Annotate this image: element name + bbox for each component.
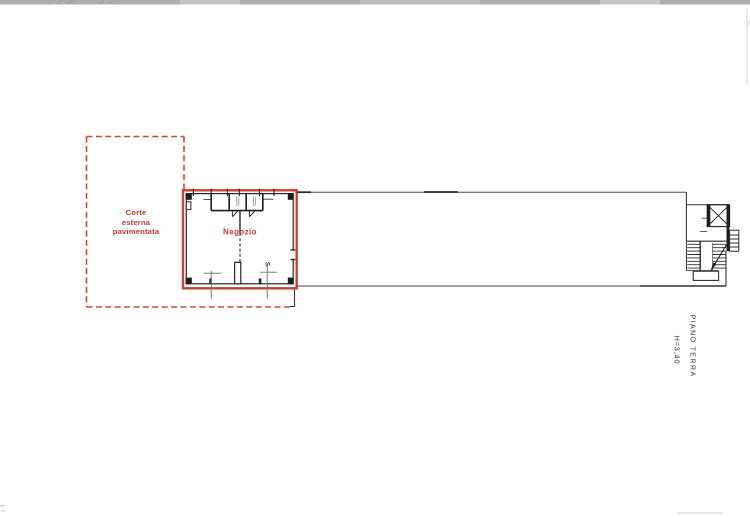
staircase (686, 241, 726, 280)
scan-bottom-left-mark (0, 505, 5, 507)
side-note-floor-name: PIANO TERRA (689, 315, 698, 378)
scan-bottom-left-mark (1, 510, 5, 512)
dimension-line-left (204, 271, 222, 299)
stair-landing (693, 271, 718, 280)
corner-pilaster (288, 278, 294, 285)
side-note-floor-height: H=3,40 (673, 336, 682, 365)
corner-pilaster (288, 193, 294, 200)
courtyard-label: Corte esterna pavimentata (113, 208, 160, 237)
left-wall-niche (186, 202, 191, 210)
courtyard-corner-wall-segment (290, 288, 295, 307)
corner-pilaster (186, 278, 192, 285)
wc-block (211, 194, 263, 284)
shop-label: Negozio (223, 228, 257, 237)
stair-direction-arrowhead (711, 263, 717, 271)
scan-band-streak (180, 0, 240, 5)
courtyard-label-line3: pavimentata (113, 227, 160, 237)
dimension-line-right (260, 266, 277, 299)
scan-band-streak (360, 0, 480, 5)
partition-closet (235, 262, 241, 283)
floor-plan-drawing (0, 0, 750, 517)
mini-stair-outline (730, 230, 739, 251)
courtyard-label-line2: esterna (113, 218, 160, 228)
corner-pilaster (186, 193, 192, 200)
long-building-outline (297, 192, 726, 286)
shaft-wall-extension (727, 227, 730, 252)
shaft-thick-wall (727, 205, 730, 227)
shaft-door-ticks (700, 218, 707, 231)
scanned-floor-plan-page: Corte esterna pavimentata Negozio S PIAN… (0, 0, 750, 517)
mini-stair-treads (730, 235, 739, 247)
stair-s-mark: S (264, 262, 271, 267)
opening-jamb (291, 249, 296, 250)
opening-jamb (291, 259, 296, 260)
shaft-x-diagonals (707, 205, 729, 227)
right-wall-opening (292, 250, 295, 259)
shaft-thick-wall (707, 205, 710, 227)
scan-artifacts (0, 0, 750, 513)
scan-band-streak (600, 0, 660, 5)
external-mini-stair (730, 230, 739, 251)
bottom-wall-pilaster (259, 278, 262, 284)
wc-door-swings (232, 211, 254, 217)
stair-left-flight-treads (687, 244, 700, 268)
courtyard-label-line1: Corte (113, 208, 160, 218)
